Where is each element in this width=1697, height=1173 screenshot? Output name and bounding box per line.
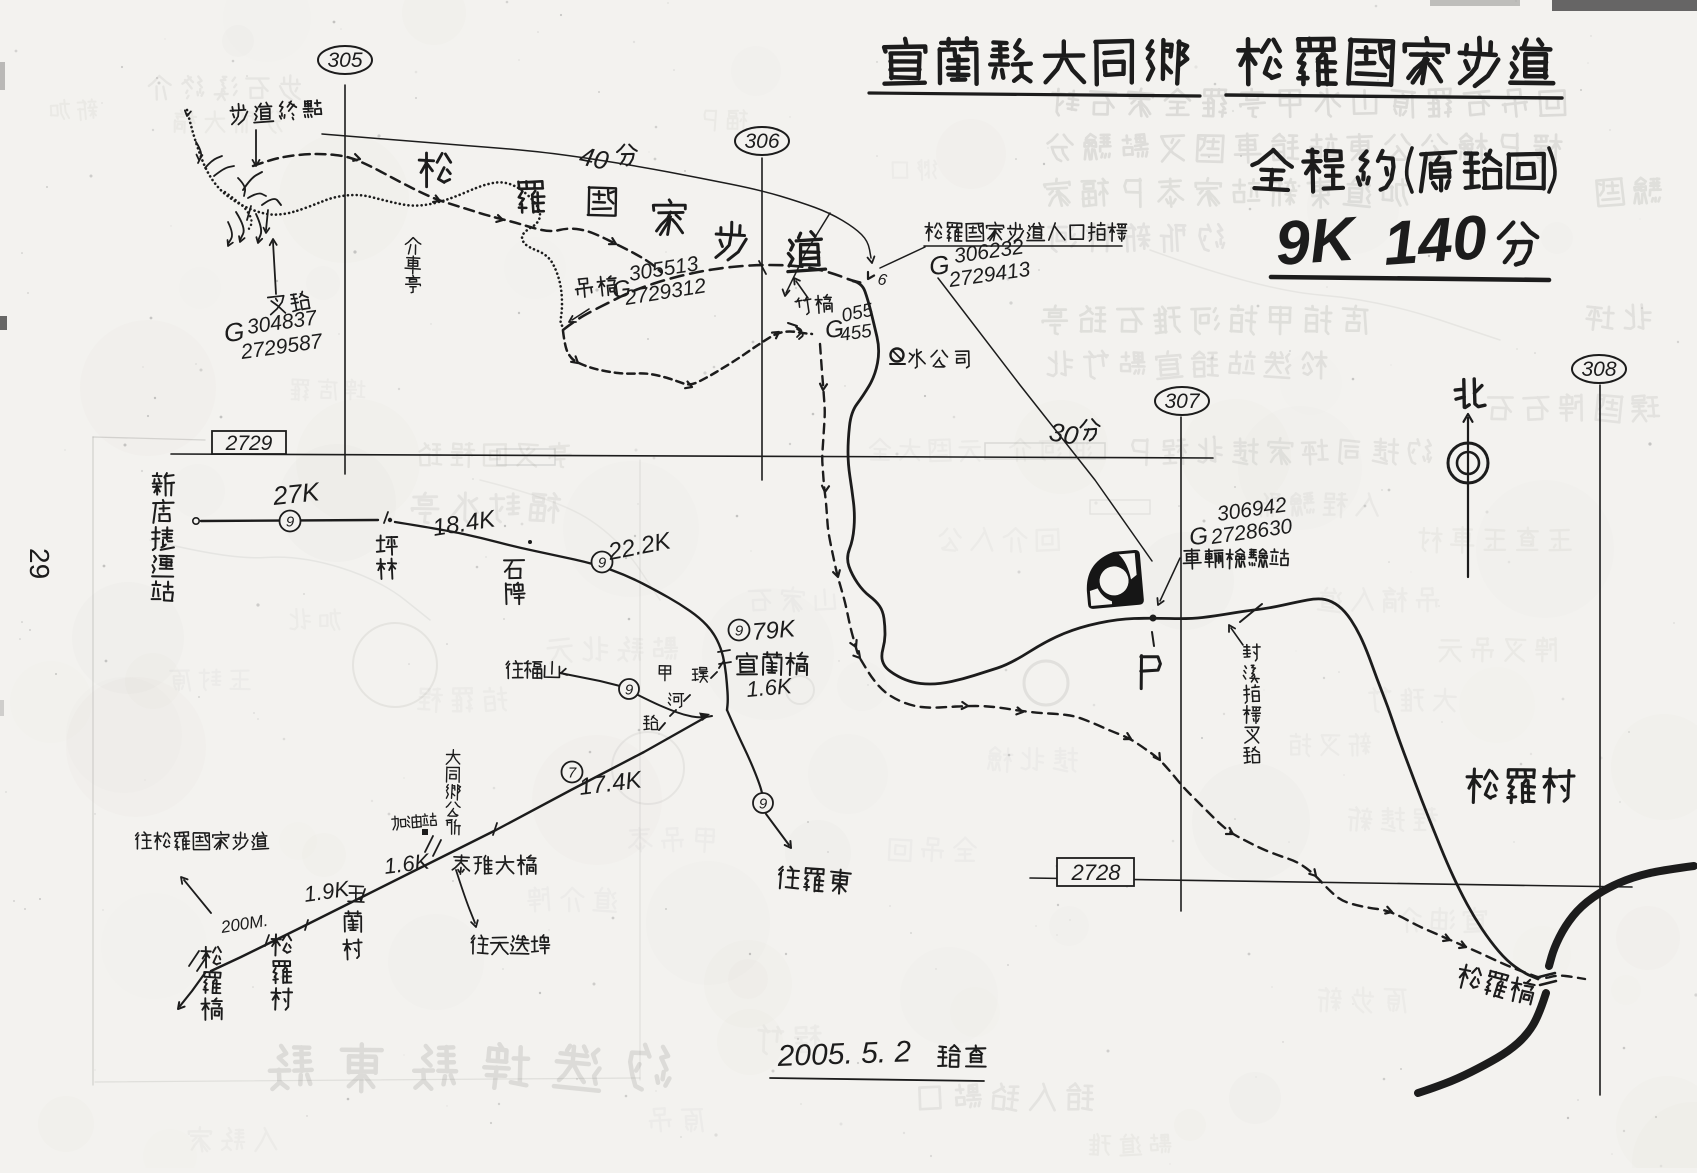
svg-text:455: 455 bbox=[839, 321, 874, 346]
svg-text:7: 7 bbox=[568, 765, 577, 782]
svg-text:G: G bbox=[928, 249, 951, 281]
svg-text:G: G bbox=[1188, 522, 1209, 551]
svg-text:9: 9 bbox=[598, 555, 607, 572]
svg-text:9: 9 bbox=[286, 514, 295, 531]
svg-text:140: 140 bbox=[1381, 203, 1489, 279]
svg-text:307: 307 bbox=[1164, 390, 1200, 413]
svg-text:2729: 2729 bbox=[225, 432, 273, 455]
svg-text:9: 9 bbox=[759, 796, 768, 813]
svg-text:30: 30 bbox=[1047, 416, 1081, 451]
svg-text:1.6K: 1.6K bbox=[745, 673, 794, 702]
svg-text:9: 9 bbox=[625, 682, 634, 699]
svg-text:306: 306 bbox=[744, 130, 779, 153]
svg-text:9: 9 bbox=[735, 623, 744, 640]
svg-text:2728: 2728 bbox=[1071, 860, 1122, 885]
svg-text:308: 308 bbox=[1581, 358, 1616, 381]
svg-text:27K: 27K bbox=[270, 476, 322, 511]
svg-text:29: 29 bbox=[24, 548, 55, 579]
svg-text:9K: 9K bbox=[1273, 204, 1361, 279]
svg-text:305: 305 bbox=[327, 49, 362, 72]
svg-text:79K: 79K bbox=[751, 615, 797, 646]
svg-text:2005. 5. 2: 2005. 5. 2 bbox=[776, 1035, 912, 1073]
